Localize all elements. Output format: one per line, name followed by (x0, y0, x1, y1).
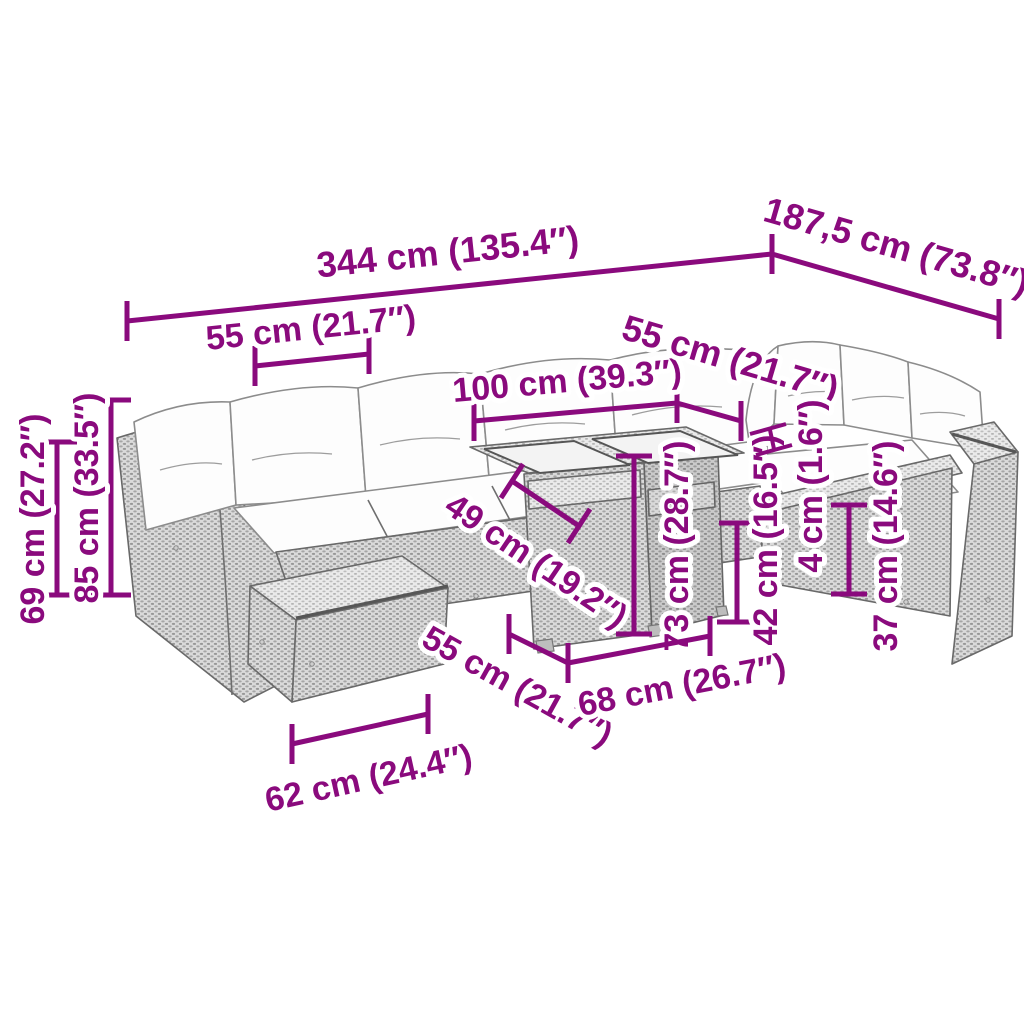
dim-total-height-label: 85 cm (33.5″) (68, 393, 106, 604)
product-dimension-diagram: 344 cm (135.4″) 187,5 cm (73.8″) 55 cm (… (0, 0, 1024, 1024)
dim-armrest-height-label: 37 cm (14.6″) (867, 441, 905, 652)
dim-armrest-module-width: 62 cm (24.4″) (262, 694, 476, 820)
dim-back-height-label: 69 cm (27.2″) (14, 414, 52, 625)
dimension-diagram-page: 344 cm (135.4″) 187,5 cm (73.8″) 55 cm (… (0, 0, 1024, 1024)
dim-left-seat-width-label: 55 cm (21.7″) (204, 298, 418, 358)
dim-overall-depth: 187,5 cm (73.8″) (759, 189, 1024, 339)
dim-total-height: 85 cm (33.5″) (68, 393, 131, 604)
dim-overall-width-label: 344 cm (135.4″) (315, 218, 581, 286)
dim-tabletop-thickness-label: 4 cm (1.6″) (792, 399, 830, 572)
dim-seat-height-label: 42 cm (16.5″) (747, 435, 785, 646)
right-armrest (950, 422, 1018, 664)
dim-table-height-label: 73 cm (28.7″) (658, 441, 696, 652)
